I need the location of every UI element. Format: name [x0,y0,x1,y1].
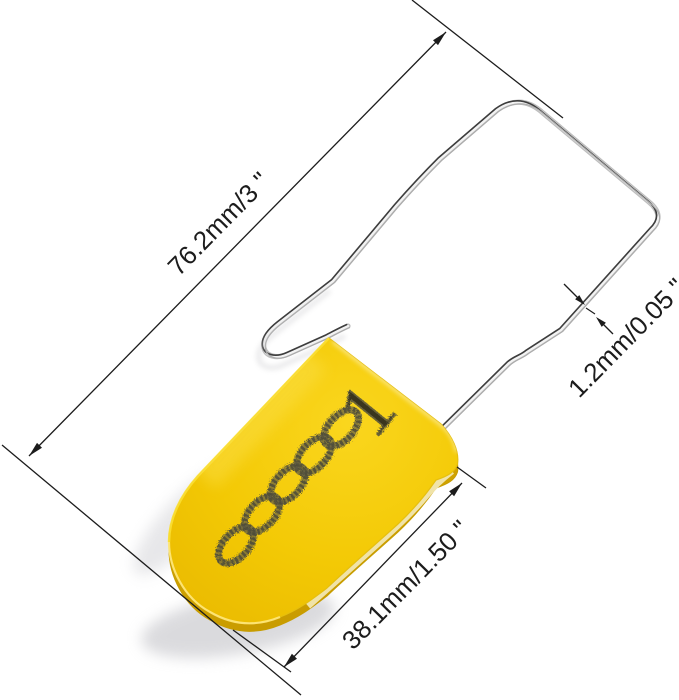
svg-text:1.2mm/0.05 ": 1.2mm/0.05 " [562,272,679,403]
